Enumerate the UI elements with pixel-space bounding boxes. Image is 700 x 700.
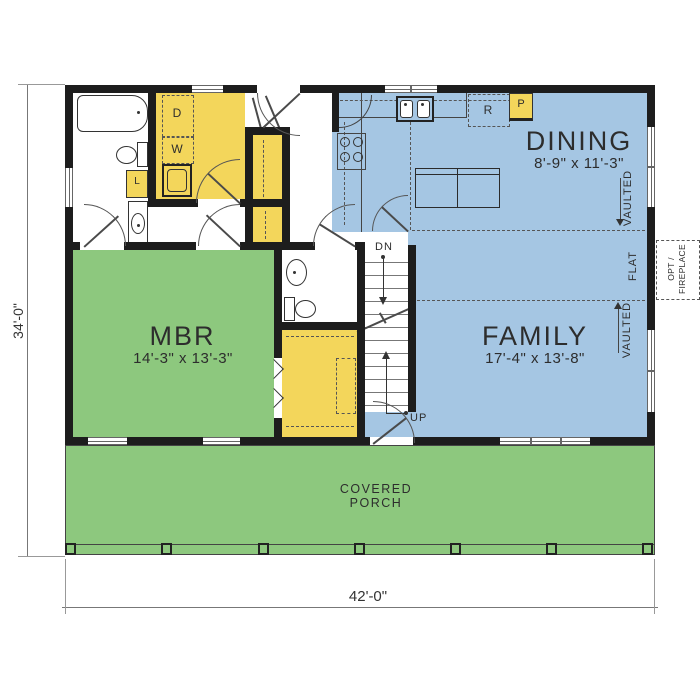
bath-sink-drain [137, 224, 140, 227]
dining-label: DINING [493, 126, 665, 157]
dim-line-bottom [62, 607, 658, 608]
wall-closet-left [245, 135, 253, 242]
ceiling-break-upper [412, 230, 645, 231]
flat-label: FLAT [627, 241, 641, 291]
washer-label: W [167, 142, 187, 156]
mbr-size: 14'-3" x 13'-3" [92, 350, 274, 367]
hall-closet-floor [253, 207, 282, 242]
range-burner-1 [340, 137, 350, 147]
pantry-label: P [511, 98, 531, 110]
kitchen-dining-divider [410, 122, 411, 230]
wall-foyer-kitchen-stub [332, 93, 339, 132]
closet-rod-top [286, 336, 354, 337]
hall-closet-rod [265, 211, 266, 239]
dim-line-left [27, 84, 28, 557]
wall-mbr-right-b [274, 418, 282, 437]
wall-exterior-left [65, 85, 73, 445]
dryer-label: D [167, 106, 187, 120]
porch-post-1 [65, 543, 76, 555]
bath-window [65, 168, 73, 207]
vaulted-family-arrowhead [614, 302, 622, 309]
wall-stairs-right [408, 245, 416, 412]
mbr-window-2 [203, 437, 240, 445]
powder-sink [286, 259, 307, 286]
dim-witness-left [65, 559, 66, 614]
range-burner-3 [340, 152, 350, 162]
mbr-window-1 [88, 437, 127, 445]
coat-closet-floor [253, 135, 282, 207]
front-door-opening [257, 85, 300, 93]
dim-witness-right [654, 559, 655, 614]
porch-label: COVERED PORCH [300, 482, 452, 511]
mbr-label: MBR [105, 321, 260, 352]
closet-shelf [336, 358, 356, 414]
linen-label: L [127, 176, 147, 187]
ceiling-break-lower [412, 300, 645, 301]
mbr-door-arc [198, 204, 240, 246]
toilet-tank [137, 142, 148, 167]
toilet-bowl [116, 146, 137, 164]
family-window-mullion-1 [530, 438, 532, 444]
tub-drain [137, 111, 140, 114]
utility-sink-basin [167, 169, 187, 192]
family-window-mullion-2 [560, 438, 562, 444]
wall-powder-closet [282, 322, 358, 330]
wall-exterior-top [65, 85, 655, 93]
porch-post-6 [546, 543, 557, 555]
vaulted-dining-arrow-line [620, 178, 621, 220]
wall-bath-laundry [148, 93, 156, 203]
dining-size: 8'-9" x 11'-3" [493, 155, 665, 172]
porch-post-2 [161, 543, 172, 555]
dim-width-label: 42'-0" [318, 588, 418, 605]
wall-hall-c [240, 242, 315, 250]
vaulted-dining-arrowhead [616, 219, 624, 226]
island-counter-line [415, 174, 500, 175]
powder-toilet-bowl [295, 300, 316, 318]
sink-faucet-left [404, 103, 407, 106]
porch-post-7 [642, 543, 653, 555]
powder-sink-drain [293, 271, 296, 274]
porch-post-3 [258, 543, 269, 555]
stairs-up-label: UP [410, 412, 436, 424]
wall-stairs-left [357, 250, 365, 437]
kitchen-window-mullion [410, 86, 412, 92]
wall-closet-right [282, 135, 290, 242]
floor-plan: R P D W L [0, 0, 700, 700]
laundry-window [192, 85, 223, 93]
sink-faucet-right [421, 103, 424, 106]
coat-closet-rod [263, 140, 264, 202]
stairs-down-label: DN [369, 241, 399, 253]
dim-witness-top-left [18, 84, 65, 85]
fireplace-label-line2: FIREPLACE [677, 241, 688, 297]
vaulted-label-dining: VAULTED [622, 168, 636, 228]
wall-hall-b [124, 242, 196, 250]
dim-witness-bottom-left [18, 556, 65, 557]
range-burner-4 [353, 152, 363, 162]
fireplace-label: OPT / FIREPLACE [666, 241, 688, 297]
porch-label-line2: PORCH [300, 496, 452, 510]
dim-depth-label: 34'-0" [10, 297, 26, 345]
closet-rod-bottom [286, 426, 354, 427]
wall-hall-d [355, 242, 365, 250]
powder-toilet-tank [284, 297, 295, 321]
porch-label-line1: COVERED [300, 482, 452, 496]
family-window-right-mullion [648, 370, 654, 372]
refrigerator-label: R [477, 103, 499, 117]
dn-arrow-line [383, 258, 384, 298]
fireplace-label-line1: OPT / [666, 241, 677, 297]
dn-arrowhead [379, 297, 387, 305]
family-label: FAMILY [445, 321, 625, 352]
wall-laundry-bottom-a [148, 199, 198, 207]
family-size: 17'-4" x 13'-8" [440, 350, 630, 367]
wall-mbr-right-a [274, 250, 282, 358]
porch-post-5 [450, 543, 461, 555]
range-burner-2 [353, 137, 363, 147]
family-window-bottom [500, 437, 590, 445]
porch-post-4 [354, 543, 365, 555]
